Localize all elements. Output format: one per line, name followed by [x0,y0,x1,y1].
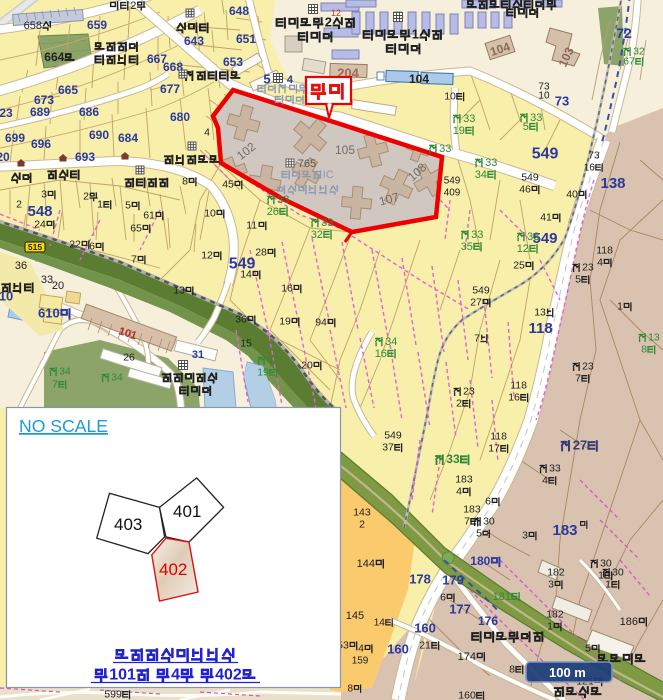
svg-text:17: 17 [488,443,500,455]
svg-text:34: 34 [59,366,71,378]
svg-text:178: 178 [409,572,431,587]
svg-text:177: 177 [449,602,471,617]
svg-text:3: 3 [41,189,47,201]
svg-text:73: 73 [588,151,600,162]
svg-text:515: 515 [28,242,42,252]
svg-text:401: 401 [173,502,201,521]
svg-text:5: 5 [575,274,581,286]
svg-text:10: 10 [0,289,13,304]
svg-text:402: 402 [215,667,242,684]
svg-text:186: 186 [620,616,638,628]
svg-text:6: 6 [89,241,95,253]
svg-text:7: 7 [131,254,137,266]
svg-text:33: 33 [463,113,475,125]
svg-text:179: 179 [442,573,464,588]
svg-text:12: 12 [201,250,213,262]
svg-text:658: 658 [24,20,42,32]
svg-text:72: 72 [616,25,632,41]
svg-text:1: 1 [605,579,611,591]
svg-text:15: 15 [240,338,252,350]
svg-text:26: 26 [123,352,135,364]
svg-text:549: 549 [444,176,461,187]
svg-text:23: 23 [582,262,594,274]
svg-text:2: 2 [16,199,22,211]
svg-text:5: 5 [585,643,591,655]
svg-text:12: 12 [331,8,341,18]
svg-text:20: 20 [301,360,313,372]
svg-text:174: 174 [458,651,476,663]
svg-text:4: 4 [542,475,548,487]
svg-text:100 m: 100 m [549,665,586,680]
svg-text:118: 118 [490,431,507,443]
svg-text:10: 10 [538,91,550,102]
svg-text:1: 1 [598,570,604,582]
svg-text:16: 16 [281,283,293,295]
svg-text:549: 549 [472,285,490,297]
svg-text:5: 5 [523,121,529,133]
svg-text:689: 689 [30,105,50,119]
svg-text:10: 10 [444,91,456,103]
svg-text:138: 138 [601,175,626,192]
svg-text:16: 16 [375,348,387,360]
svg-text:12: 12 [517,243,529,255]
svg-text:549: 549 [521,172,539,184]
svg-text:6: 6 [485,496,491,508]
svg-text:144: 144 [357,558,375,570]
svg-text:182: 182 [546,609,564,621]
svg-text:34: 34 [475,169,487,181]
svg-text:101: 101 [109,667,136,684]
svg-text:27: 27 [470,297,482,309]
svg-text:45: 45 [222,179,234,191]
svg-text:36: 36 [15,260,27,272]
svg-text:1: 1 [412,27,419,42]
svg-text:32: 32 [311,229,323,241]
svg-text:7: 7 [575,373,581,385]
svg-text:765: 765 [298,158,316,170]
svg-text:30: 30 [483,516,495,528]
svg-text:28: 28 [255,247,267,259]
svg-text:23: 23 [463,386,475,398]
svg-text:35: 35 [461,241,473,253]
svg-text:30: 30 [612,567,624,579]
svg-text:118: 118 [529,320,553,337]
svg-text:8: 8 [641,344,647,356]
svg-text:677: 677 [160,82,180,96]
svg-text:699: 699 [5,131,25,145]
svg-text:37: 37 [382,442,394,454]
svg-text:7: 7 [52,379,58,391]
svg-text:5: 5 [476,528,482,540]
svg-text:31: 31 [192,349,204,361]
svg-text:1: 1 [97,199,103,211]
svg-text:22: 22 [69,239,81,251]
svg-text:143: 143 [353,507,371,519]
svg-text:NO SCALE: NO SCALE [19,416,108,436]
svg-text:19: 19 [279,316,291,328]
svg-text:IC: IC [323,169,334,181]
svg-text:8: 8 [348,684,354,695]
svg-text:33: 33 [485,157,497,169]
svg-text:160: 160 [414,621,436,636]
svg-text:23: 23 [0,106,13,120]
svg-text:34: 34 [111,372,123,384]
svg-text:4: 4 [597,257,603,269]
svg-text:651: 651 [236,32,256,46]
svg-text:104: 104 [409,72,429,86]
svg-text:25: 25 [513,260,525,272]
svg-text:33: 33 [321,217,333,229]
svg-text:1: 1 [547,621,553,633]
svg-text:21: 21 [419,640,431,652]
svg-text:643: 643 [184,34,204,48]
svg-text:648: 648 [229,4,249,18]
svg-text:549: 549 [384,430,402,442]
svg-text:11: 11 [246,220,257,232]
svg-text:180: 180 [470,554,490,568]
svg-text:33: 33 [527,231,539,243]
svg-text:2: 2 [456,398,462,410]
svg-text:183: 183 [463,504,481,516]
svg-text:659: 659 [87,18,107,32]
svg-text:40: 40 [566,189,578,201]
svg-text:183: 183 [553,522,578,539]
svg-text:2: 2 [130,0,136,12]
svg-text:41: 41 [540,212,552,224]
svg-text:5: 5 [125,200,131,212]
svg-text:118: 118 [596,245,613,257]
svg-text:16: 16 [584,163,596,174]
svg-text:33: 33 [277,194,289,206]
svg-text:181: 181 [493,591,511,603]
svg-text:26: 26 [267,206,279,218]
svg-text:14: 14 [374,618,386,629]
svg-text:599: 599 [104,689,122,700]
svg-text:183: 183 [455,474,473,486]
svg-text:684: 684 [118,131,138,145]
svg-text:182: 182 [547,567,565,579]
svg-text:13: 13 [173,285,185,297]
svg-text:2: 2 [83,191,89,203]
svg-text:548: 548 [28,203,53,220]
svg-text:33: 33 [446,452,460,466]
svg-text:665: 665 [58,83,78,97]
svg-text:4: 4 [204,127,210,139]
svg-text:690: 690 [89,128,109,142]
svg-text:105: 105 [335,143,355,157]
svg-text:653: 653 [223,55,243,69]
svg-text:7: 7 [474,333,480,345]
svg-text:94: 94 [315,317,327,329]
svg-text:23: 23 [582,361,594,373]
svg-text:4: 4 [287,74,294,86]
svg-text:3: 3 [522,530,528,542]
svg-text:30: 30 [600,558,612,570]
svg-text:7: 7 [464,516,470,528]
svg-text:176: 176 [478,614,498,628]
svg-text:686: 686 [79,105,99,119]
svg-text:19: 19 [257,367,269,379]
svg-text:549: 549 [229,256,256,273]
svg-text:13: 13 [534,307,546,319]
svg-text:33: 33 [530,112,542,124]
svg-text:6: 6 [440,592,446,604]
svg-text:16: 16 [508,392,520,404]
svg-text:118: 118 [510,380,527,392]
svg-text:4: 4 [358,643,364,655]
svg-text:24: 24 [34,219,46,231]
svg-text:409: 409 [444,188,461,199]
svg-text:13: 13 [648,332,660,344]
svg-text:549: 549 [532,146,559,163]
svg-text:680: 680 [170,110,190,124]
svg-text:1: 1 [617,301,623,313]
svg-text:403: 403 [114,515,142,534]
svg-text:73: 73 [555,94,569,109]
svg-text:34: 34 [267,355,279,367]
svg-text:36: 36 [235,314,247,326]
svg-text:20: 20 [0,150,10,164]
svg-text:20: 20 [52,280,64,292]
svg-text:693: 693 [75,150,95,164]
svg-text:33: 33 [471,229,483,241]
svg-text:33: 33 [439,143,451,155]
svg-text:160: 160 [458,690,476,700]
svg-text:10: 10 [204,208,216,220]
svg-text:696: 696 [31,137,51,151]
svg-text:145: 145 [346,610,364,622]
svg-text:160: 160 [387,642,409,657]
svg-text:8: 8 [182,176,188,188]
svg-text:4: 4 [171,667,180,684]
svg-text:65: 65 [130,223,142,235]
svg-text:27: 27 [573,438,587,453]
svg-text:610: 610 [38,306,60,321]
svg-text:67: 67 [623,56,635,68]
svg-text:2: 2 [359,519,365,531]
svg-text:61: 61 [143,210,155,222]
svg-text:19: 19 [453,125,465,137]
svg-text:3: 3 [548,579,554,591]
svg-text:46: 46 [519,184,531,196]
svg-text:34: 34 [385,336,397,348]
svg-text:8: 8 [509,664,515,676]
svg-text:664: 664 [44,50,64,64]
svg-text:33: 33 [549,463,561,475]
svg-text:402: 402 [159,560,187,579]
svg-text:159: 159 [352,656,369,667]
svg-text:4: 4 [456,486,462,498]
